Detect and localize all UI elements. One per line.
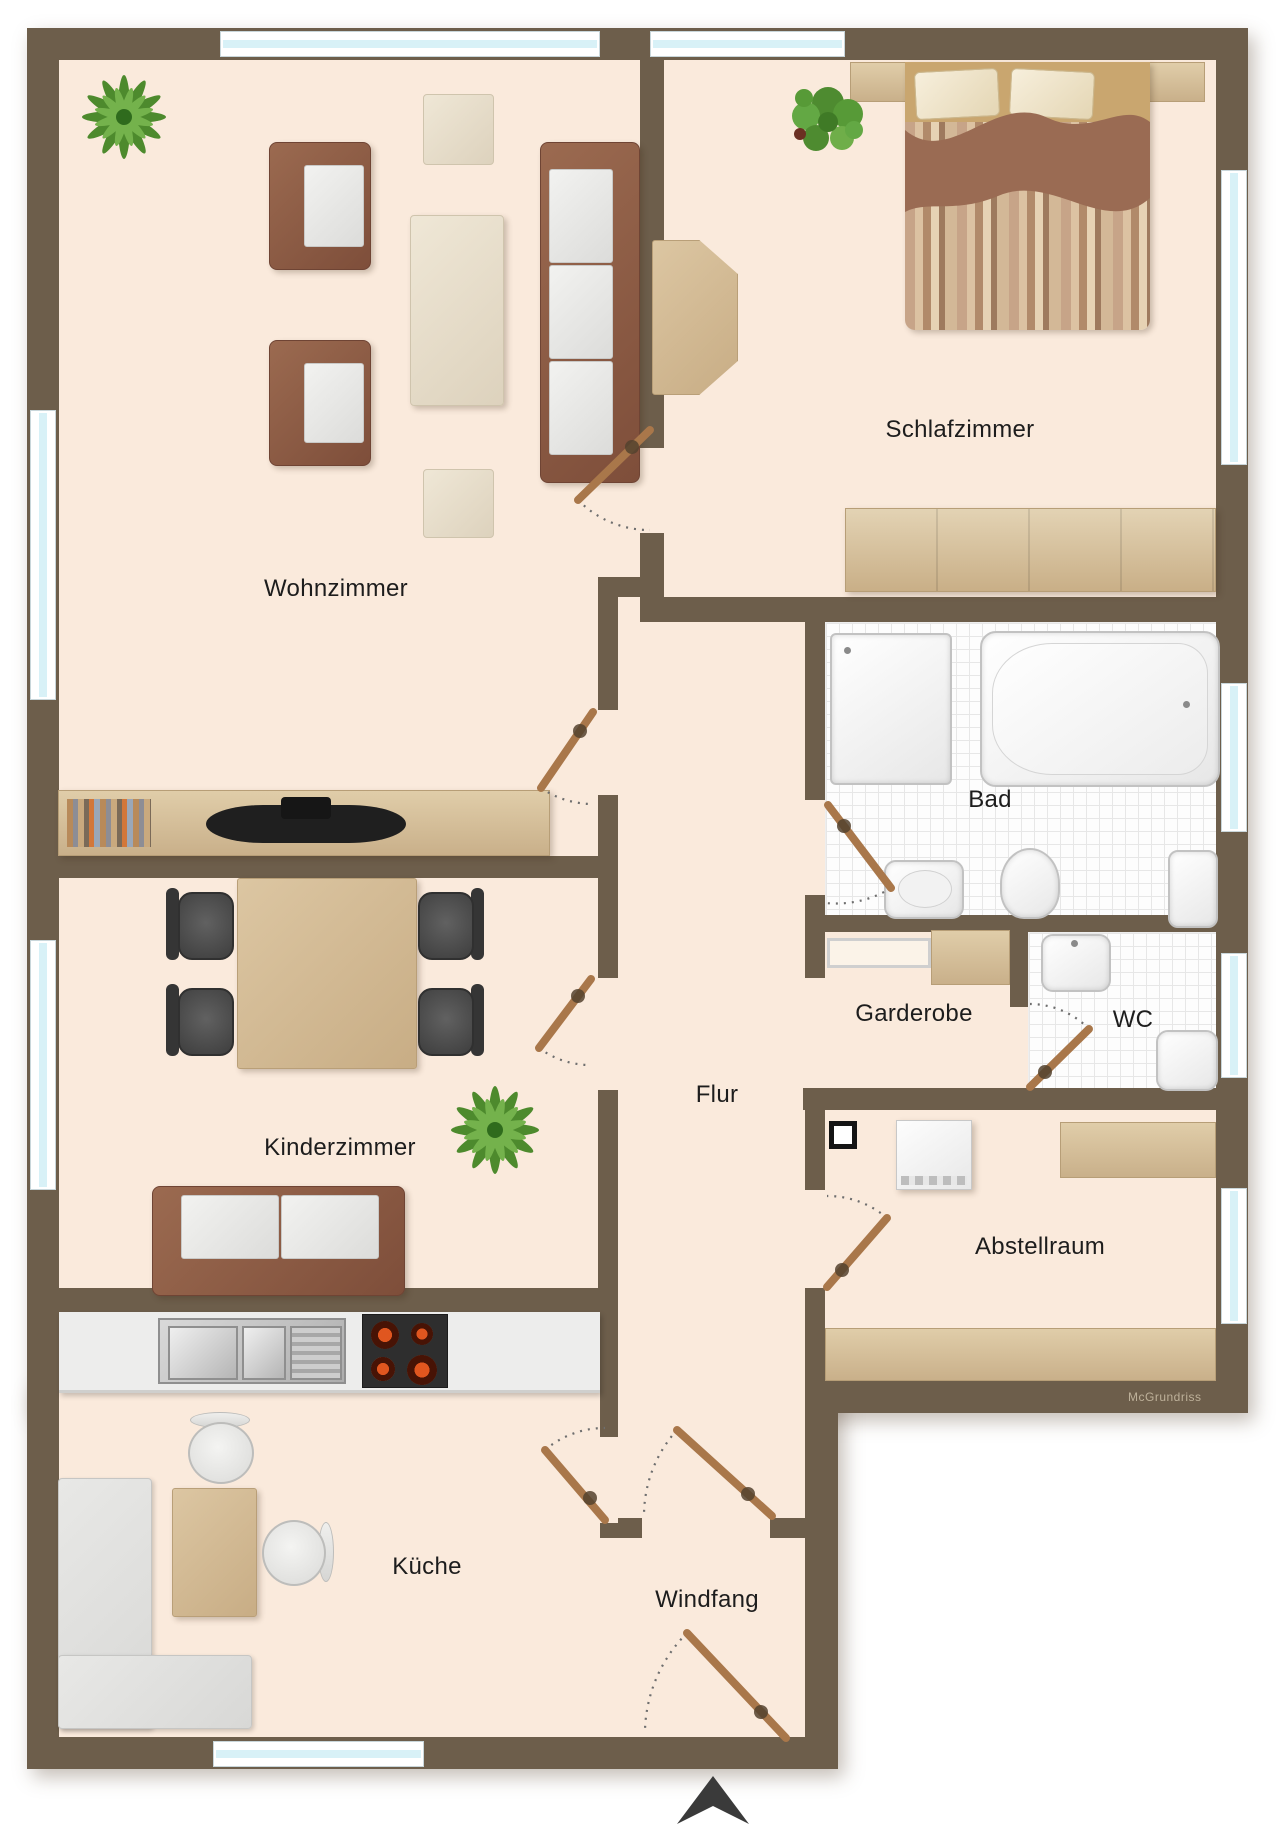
bathtub <box>980 631 1220 787</box>
office-chair <box>412 886 484 964</box>
corner-bench <box>58 1655 252 1729</box>
desk <box>652 240 738 395</box>
wall <box>805 1110 825 1190</box>
side-table <box>423 469 494 538</box>
sofa <box>152 1186 405 1296</box>
double-bed <box>905 62 1150 330</box>
storage-shelf <box>1060 1122 1216 1178</box>
room-label-windfang: Windfang <box>655 1586 759 1614</box>
coffee-table <box>410 215 504 406</box>
wall <box>805 1288 825 1381</box>
window <box>1221 953 1247 1078</box>
wc-toilet <box>1156 1030 1218 1091</box>
armchair <box>269 142 371 270</box>
wall <box>1010 932 1028 1007</box>
room-label-garderobe: Garderobe <box>855 1000 972 1028</box>
room-label-wc: WC <box>1113 1006 1154 1034</box>
bidet <box>1000 848 1060 919</box>
wall <box>805 622 825 800</box>
kitchen-table <box>172 1488 257 1617</box>
window <box>30 410 56 700</box>
books <box>67 799 151 847</box>
wardrobe <box>845 508 1216 592</box>
window <box>1221 1188 1247 1324</box>
window <box>213 1741 424 1767</box>
wall <box>598 795 618 978</box>
wall <box>805 895 825 978</box>
window <box>1221 683 1247 832</box>
wall <box>598 1090 618 1288</box>
wall <box>805 915 1216 932</box>
washing-machine <box>896 1120 972 1190</box>
room-label-wohnzimmer: Wohnzimmer <box>264 575 408 603</box>
toilet <box>1168 850 1218 928</box>
tv-stand <box>281 797 331 819</box>
shaft-symbol <box>829 1121 857 1149</box>
wc-sink <box>1041 934 1111 992</box>
window <box>650 31 845 57</box>
wall <box>618 1518 642 1538</box>
pillow <box>914 68 1000 120</box>
armchair <box>269 340 371 466</box>
north-arrow-icon <box>677 1776 749 1824</box>
tv-sideboard <box>58 790 550 856</box>
wall <box>600 1523 618 1538</box>
washbasin <box>884 860 964 919</box>
wall <box>640 533 664 577</box>
wall <box>27 28 59 1769</box>
storage-shelf <box>825 1328 1216 1381</box>
wall <box>27 28 1248 60</box>
garderobe-cabinet <box>931 930 1010 985</box>
room-label-kinderzimmer: Kinderzimmer <box>264 1134 416 1162</box>
window <box>1221 170 1247 465</box>
wall <box>27 856 618 878</box>
wall <box>27 1737 838 1769</box>
window <box>30 940 56 1190</box>
wall <box>805 1413 838 1737</box>
sofa <box>540 142 640 483</box>
wall <box>640 597 1216 622</box>
side-table <box>423 94 494 165</box>
shower <box>830 633 952 785</box>
room-label-schlafzimmer: Schlafzimmer <box>886 416 1035 444</box>
office-chair <box>166 982 238 1060</box>
room-label-flur: Flur <box>696 1081 739 1109</box>
wall <box>598 577 664 597</box>
wall <box>770 1518 805 1538</box>
wall <box>598 597 618 710</box>
stove <box>362 1314 448 1388</box>
pillow <box>1009 68 1095 120</box>
kitchen-sink <box>158 1318 346 1384</box>
duvet <box>905 122 1150 330</box>
table <box>237 878 417 1069</box>
room-label-bad: Bad <box>968 786 1012 814</box>
floor-plan: Wohnzimmer Schlafzimmer Bad Garderobe WC… <box>0 0 1280 1837</box>
wardrobe-shelf <box>827 938 931 968</box>
room-label-kueche: Küche <box>392 1553 462 1581</box>
wall <box>803 1088 1216 1110</box>
window <box>220 31 600 57</box>
room-label-abstellraum: Abstellraum <box>975 1233 1105 1261</box>
wall <box>600 1312 618 1437</box>
watermark: McGrundriss <box>1128 1390 1202 1404</box>
office-chair <box>166 886 238 964</box>
office-chair <box>412 982 484 1060</box>
